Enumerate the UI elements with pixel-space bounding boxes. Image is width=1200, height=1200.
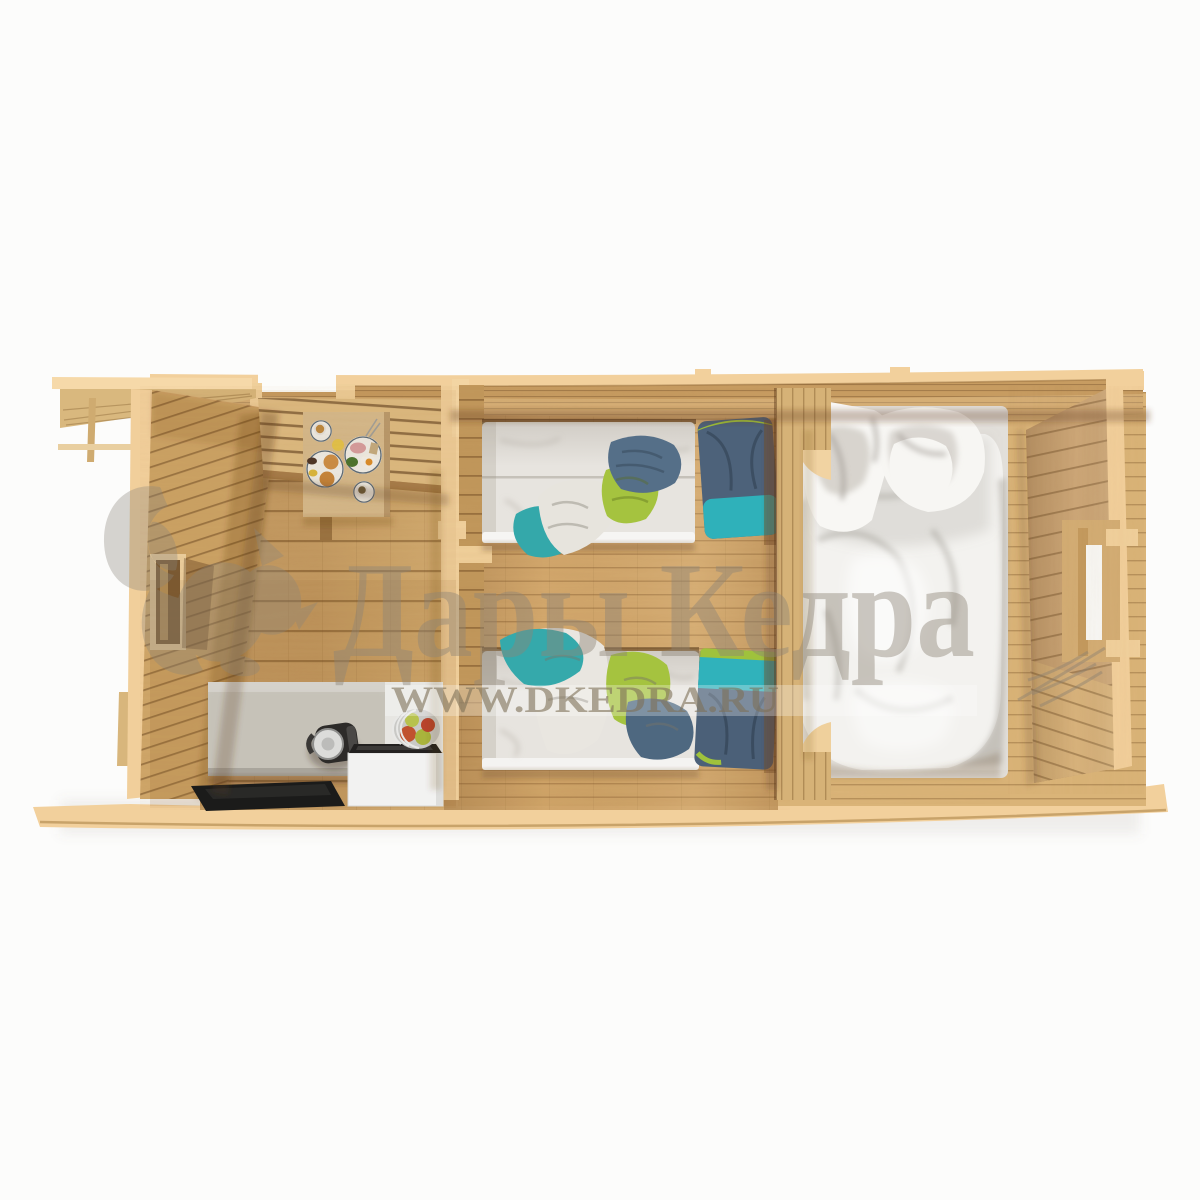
svg-text:WWW.DKEDRA.RU: WWW.DKEDRA.RU	[391, 680, 779, 721]
svg-text:Дары Кедра: Дары Кедра	[333, 534, 975, 686]
